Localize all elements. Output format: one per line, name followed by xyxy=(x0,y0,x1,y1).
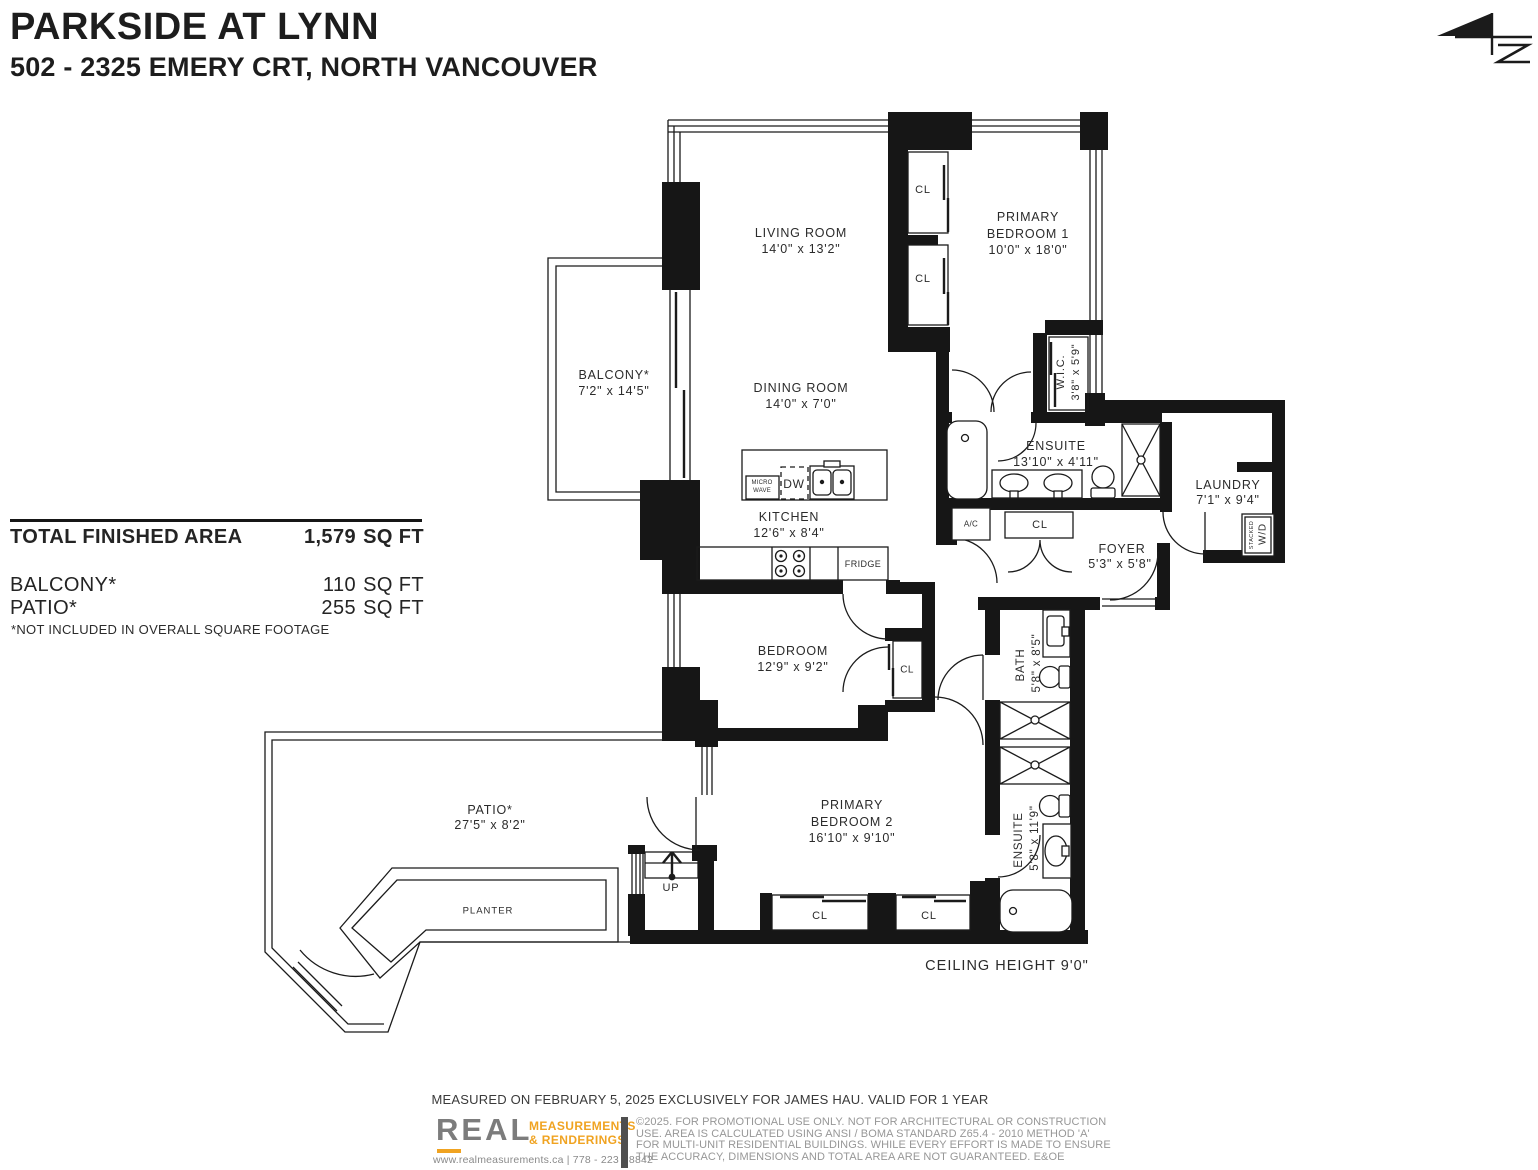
room-label-balcony: BALCONY* xyxy=(578,368,649,382)
stacked-label: STACKED xyxy=(1249,521,1255,549)
disclaimer-line-1: ©2025. FOR PROMOTIONAL USE ONLY. NOT FOR… xyxy=(636,1117,1111,1129)
area-table-balcony-row: BALCONY* 110 SQ FT xyxy=(10,574,424,597)
disclaimer-line-4: THE ACCURACY, DIMENSIONS AND TOTAL AREA … xyxy=(636,1152,1111,1164)
total-area-label: TOTAL FINISHED AREA xyxy=(10,526,280,549)
room-dims-kitchen: 12'6" x 8'4" xyxy=(753,526,824,540)
closet-label-hall: CL xyxy=(1032,519,1048,531)
floorplan-page: PARKSIDE AT LYNN 502 - 2325 EMERY CRT, N… xyxy=(0,0,1538,1170)
patio-outline xyxy=(265,732,700,1032)
room-label-bath: BATH xyxy=(1015,648,1027,681)
room-label-living: LIVING ROOM xyxy=(755,226,847,240)
ceiling-height-note: CEILING HEIGHT 9'0" xyxy=(925,958,1089,974)
room-label-ensuite2: ENSUITE xyxy=(1013,812,1025,867)
patio-area-value: 255 xyxy=(280,597,356,620)
room-label-foyer: FOYER xyxy=(1098,542,1145,556)
room-dims-primary1: 10'0" x 18'0" xyxy=(989,243,1068,257)
room-dims-dining: 14'0" x 7'0" xyxy=(765,397,836,411)
closet-label-pb2-right: CL xyxy=(921,910,937,922)
patio-area-unit: SQ FT xyxy=(356,597,424,620)
room-label-laundry: LAUNDRY xyxy=(1195,478,1260,492)
room-dims-wic: 3'8" x 5'9" xyxy=(1070,344,1082,401)
area-table-total-row: TOTAL FINISHED AREA 1,579 SQ FT xyxy=(10,526,424,549)
closet-label-pb1-top: CL xyxy=(915,184,931,196)
footer-divider xyxy=(621,1117,628,1168)
balcony-slider xyxy=(670,290,690,480)
measurement-statement: MEASURED ON FEBRUARY 5, 2025 EXCLUSIVELY… xyxy=(420,1092,1000,1107)
room-dims-ensuite2: 5'8" x 11'9" xyxy=(1029,805,1041,870)
room-label-primary1-line1: PRIMARY xyxy=(997,210,1059,224)
room-dims-bedroom: 12'9" x 9'2" xyxy=(757,660,828,674)
area-table-divider xyxy=(10,519,422,522)
logo-renderings: & RENDERINGS xyxy=(529,1133,626,1147)
room-label-dining: DINING ROOM xyxy=(754,381,849,395)
room-dims-foyer: 5'3" x 5'8" xyxy=(1088,557,1151,571)
balcony-area-unit: SQ FT xyxy=(356,574,424,597)
room-dims-primary2: 16'10" x 9'10" xyxy=(809,831,896,845)
room-label-primary2-line2: BEDROOM 2 xyxy=(811,815,893,829)
room-dims-ensuite1: 13'10" x 4'11" xyxy=(1013,455,1099,469)
microwave-label-line2: WAVE xyxy=(753,488,771,494)
room-label-primary2-line1: PRIMARY xyxy=(821,798,883,812)
wd-label: W/D xyxy=(1258,523,1269,545)
footer-disclaimer: ©2025. FOR PROMOTIONAL USE ONLY. NOT FOR… xyxy=(636,1117,1111,1163)
dishwasher-label: DW xyxy=(783,477,805,491)
disclaimer-line-3: FOR MULTI-UNIT RESIDENTIAL BUILDINGS. WH… xyxy=(636,1140,1111,1152)
room-dims-bath: 5'8" x 8'5" xyxy=(1031,633,1043,692)
balcony-area-value: 110 xyxy=(280,574,356,597)
room-dims-balcony: 7'2" x 14'5" xyxy=(578,384,649,398)
balcony-area-label: BALCONY* xyxy=(10,574,280,597)
closet-label-bedroom: CL xyxy=(900,665,913,676)
room-label-primary1-line2: BEDROOM 1 xyxy=(987,227,1069,241)
area-table-note: *NOT INCLUDED IN OVERALL SQUARE FOOTAGE xyxy=(11,622,329,637)
fridge-label: FRIDGE xyxy=(845,559,881,569)
room-label-kitchen: KITCHEN xyxy=(759,510,819,524)
ac-label: A/C xyxy=(964,520,978,529)
room-label-ensuite1: ENSUITE xyxy=(1026,439,1086,453)
logo-real: REAL xyxy=(436,1112,532,1148)
room-dims-patio: 27'5" x 8'2" xyxy=(454,818,525,832)
room-label-bedroom: BEDROOM xyxy=(758,644,828,658)
closet-label-pb1-bottom: CL xyxy=(915,273,931,285)
room-label-wic: W.I.C. xyxy=(1055,355,1067,390)
logo-measurements: MEASUREMENTS xyxy=(529,1119,636,1133)
patio-area-label: PATIO* xyxy=(10,597,280,620)
room-dims-laundry: 7'1" x 9'4" xyxy=(1196,493,1259,507)
room-label-patio: PATIO* xyxy=(467,803,512,817)
planter-label: PLANTER xyxy=(463,906,514,917)
up-label: UP xyxy=(663,882,680,894)
closet-label-pb2-left: CL xyxy=(812,910,828,922)
area-table-patio-row: PATIO* 255 SQ FT xyxy=(10,597,424,620)
logo-accent-bar xyxy=(437,1149,461,1153)
total-area-value: 1,579 xyxy=(280,526,356,549)
total-area-unit: SQ FT xyxy=(356,526,424,549)
planter-outline xyxy=(340,868,618,978)
room-dims-living: 14'0" x 13'2" xyxy=(762,242,841,256)
microwave-label-line1: MICRO xyxy=(752,480,773,486)
